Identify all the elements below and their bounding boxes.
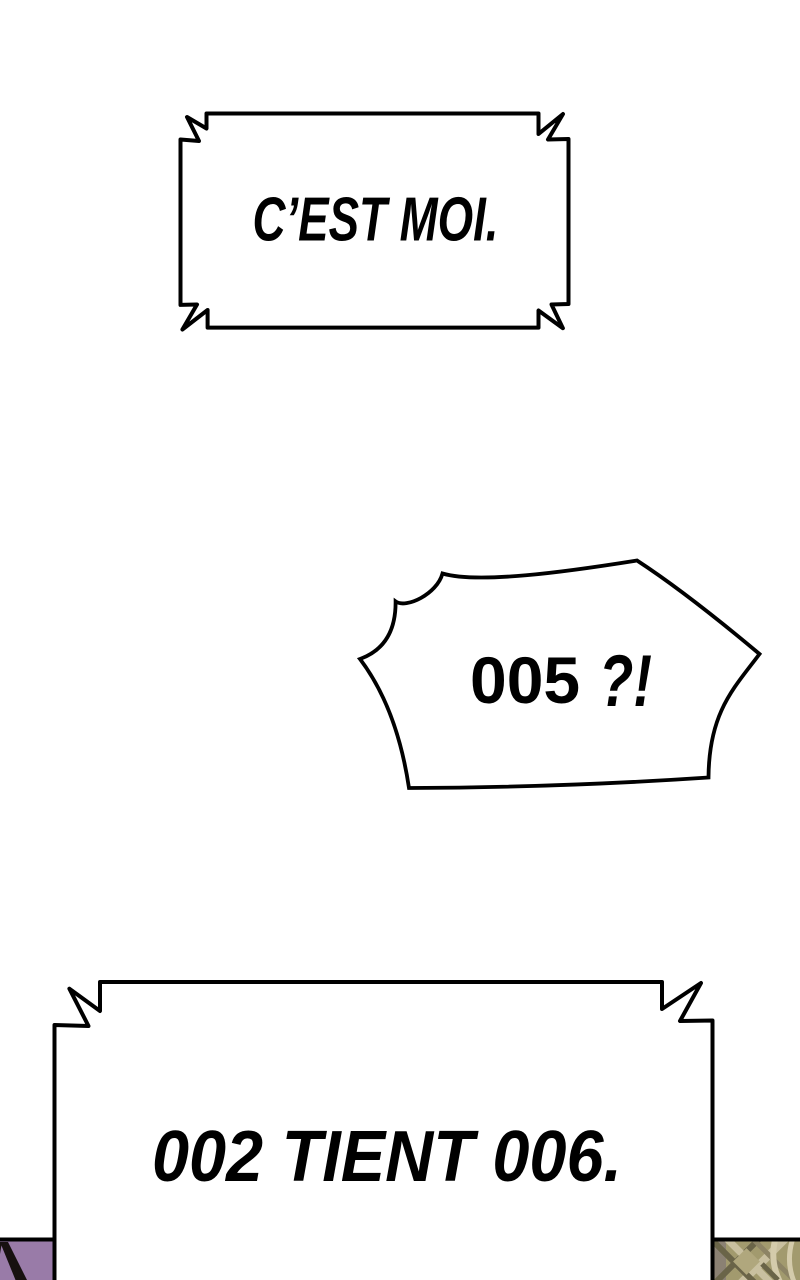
svg-text:?!: ?! bbox=[599, 641, 652, 722]
svg-text:C’EST MOI.: C’EST MOI. bbox=[253, 186, 499, 255]
svg-text:005: 005 bbox=[470, 643, 580, 717]
svg-text:002 TIENT 006.: 002 TIENT 006. bbox=[152, 1117, 622, 1197]
